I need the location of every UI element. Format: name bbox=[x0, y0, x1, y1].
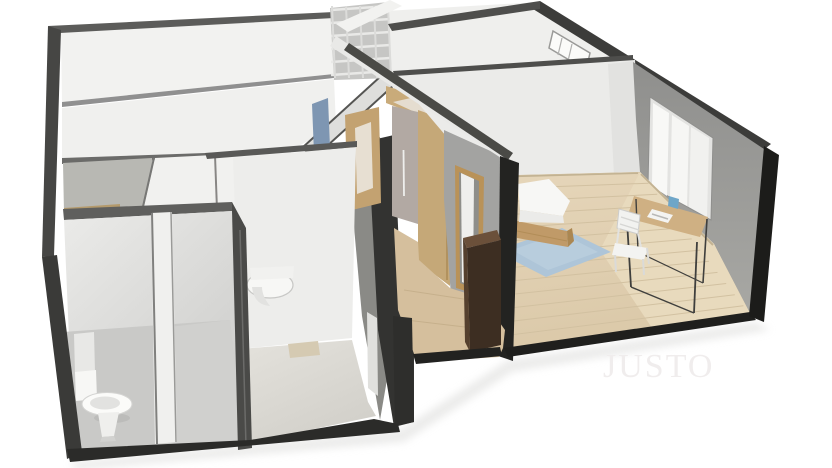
svg-text:JUSTO: JUSTO bbox=[603, 348, 714, 385]
